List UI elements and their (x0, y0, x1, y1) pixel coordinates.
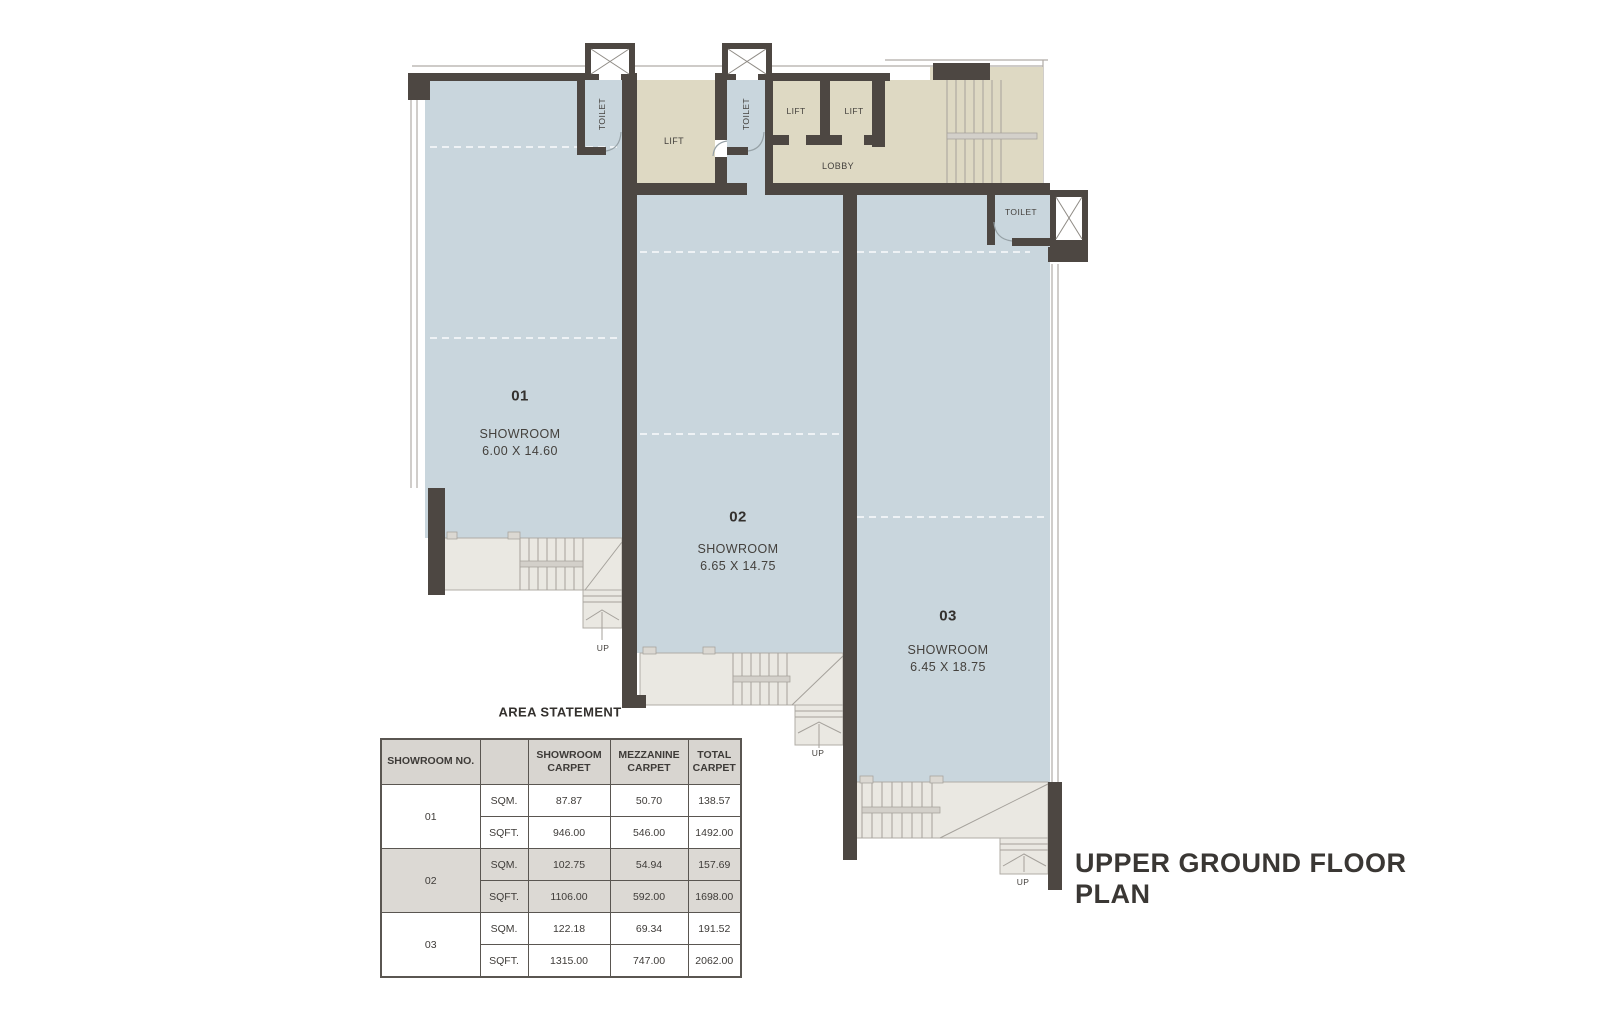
table-cell: 2062.00 (688, 945, 741, 978)
table-cell: 946.00 (528, 817, 610, 849)
showroom-02-name: SHOWROOM (698, 542, 779, 556)
stair-up-label-3: UP (1017, 877, 1030, 887)
toilet-3-label: TOILET (1005, 207, 1037, 217)
table-cell: 747.00 (610, 945, 688, 978)
table-cell: 54.94 (610, 849, 688, 881)
table-cell: 592.00 (610, 881, 688, 913)
table-cell: 157.69 (688, 849, 741, 881)
table-row: 02 SQM. 102.75 54.94 157.69 (381, 849, 741, 881)
table-cell: 02 (381, 849, 480, 913)
showroom-02-dimensions: 6.65 X 14.75 (700, 559, 776, 573)
table-cell: 102.75 (528, 849, 610, 881)
table-cell: 50.70 (610, 785, 688, 817)
table-cell: SQM. (480, 849, 528, 881)
toilet-2-label: TOILET (741, 98, 751, 130)
table-cell: 03 (381, 913, 480, 978)
table-cell: 1315.00 (528, 945, 610, 978)
table-cell: SQFT. (480, 881, 528, 913)
lift-a-label: LIFT (786, 106, 805, 116)
table-cell: 1492.00 (688, 817, 741, 849)
stair-up-label-1: UP (597, 643, 610, 653)
table-cell: 138.57 (688, 785, 741, 817)
table-cell: 122.18 (528, 913, 610, 945)
table-header-row: SHOWROOM NO. SHOWROOM CARPET MEZZANINE C… (381, 739, 741, 785)
table-cell: 546.00 (610, 817, 688, 849)
table-row: 01 SQM. 87.87 50.70 138.57 (381, 785, 741, 817)
column-header-unit (480, 739, 528, 785)
table-cell: 1106.00 (528, 881, 610, 913)
column-header-mezzanine-carpet: MEZZANINE CARPET (610, 739, 688, 785)
table-cell: SQFT. (480, 817, 528, 849)
showroom-03-name: SHOWROOM (908, 643, 989, 657)
lift-main-label: LIFT (664, 136, 684, 146)
table-cell: 69.34 (610, 913, 688, 945)
table-cell: SQM. (480, 913, 528, 945)
table-cell: SQM. (480, 785, 528, 817)
table-cell: 01 (381, 785, 480, 849)
table-row: 03 SQM. 122.18 69.34 191.52 (381, 913, 741, 945)
area-statement-title: AREA STATEMENT (498, 705, 621, 720)
lobby-label: LOBBY (822, 161, 854, 171)
column-header-total-carpet: TOTAL CARPET (688, 739, 741, 785)
column-header-showroom-carpet: SHOWROOM CARPET (528, 739, 610, 785)
table-cell: 87.87 (528, 785, 610, 817)
showroom-01-name: SHOWROOM (480, 427, 561, 441)
showroom-01-dimensions: 6.00 X 14.60 (482, 444, 558, 458)
showroom-02-number: 02 (729, 509, 747, 526)
table-cell: 191.52 (688, 913, 741, 945)
page-title: UPPER GROUND FLOOR PLAN (1075, 848, 1425, 910)
stair-up-label-2: UP (812, 748, 825, 758)
showroom-03-dimensions: 6.45 X 18.75 (910, 660, 986, 674)
toilet-1-label: TOILET (597, 98, 607, 130)
floor-plan-page: TOILET TOILET LIFT LIFT LIFT LOBBY TOILE… (0, 0, 1600, 1036)
lift-b-label: LIFT (844, 106, 863, 116)
table-cell: 1698.00 (688, 881, 741, 913)
showroom-01-number: 01 (511, 388, 529, 405)
showroom-03-number: 03 (939, 608, 957, 625)
table-cell: SQFT. (480, 945, 528, 978)
column-header-showroom-no: SHOWROOM NO. (381, 739, 480, 785)
area-statement-table: SHOWROOM NO. SHOWROOM CARPET MEZZANINE C… (380, 738, 742, 978)
